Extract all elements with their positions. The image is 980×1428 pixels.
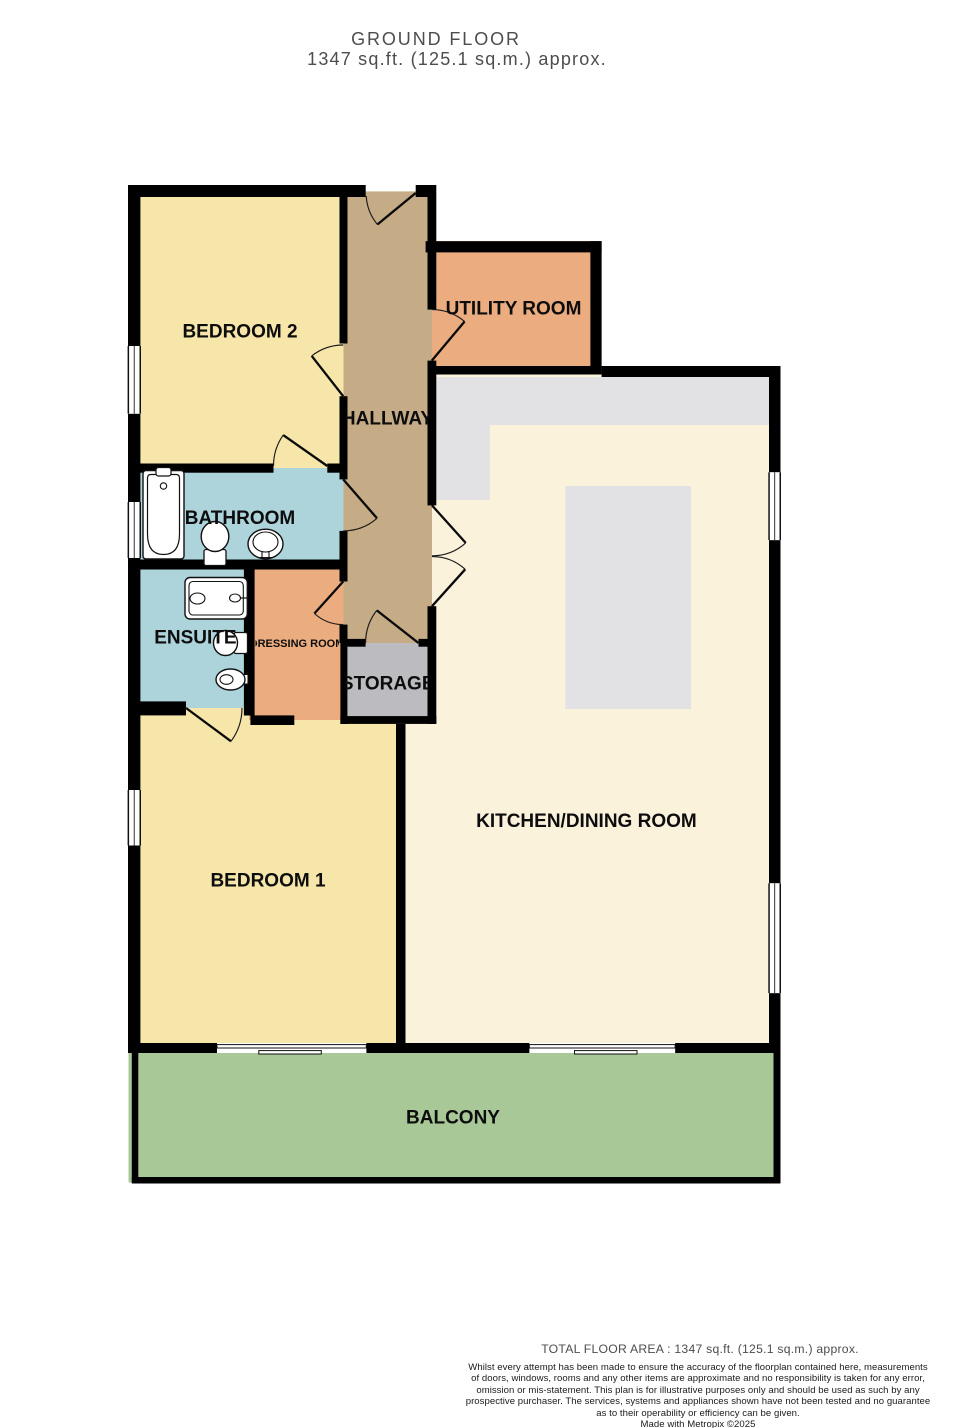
svg-text:BATHROOM: BATHROOM <box>185 508 295 529</box>
svg-text:BEDROOM 2: BEDROOM 2 <box>182 322 297 343</box>
svg-text:UTILITY ROOM: UTILITY ROOM <box>446 299 582 320</box>
svg-text:ENSUITE: ENSUITE <box>154 628 236 649</box>
svg-text:BALCONY: BALCONY <box>406 1108 500 1129</box>
svg-text:HALLWAY: HALLWAY <box>342 409 433 430</box>
svg-text:DRESSING ROOM: DRESSING ROOM <box>250 638 345 650</box>
svg-text:STORAGE: STORAGE <box>341 674 435 695</box>
svg-text:KITCHEN/DINING ROOM: KITCHEN/DINING ROOM <box>476 811 697 832</box>
svg-text:BEDROOM 1: BEDROOM 1 <box>210 871 326 892</box>
